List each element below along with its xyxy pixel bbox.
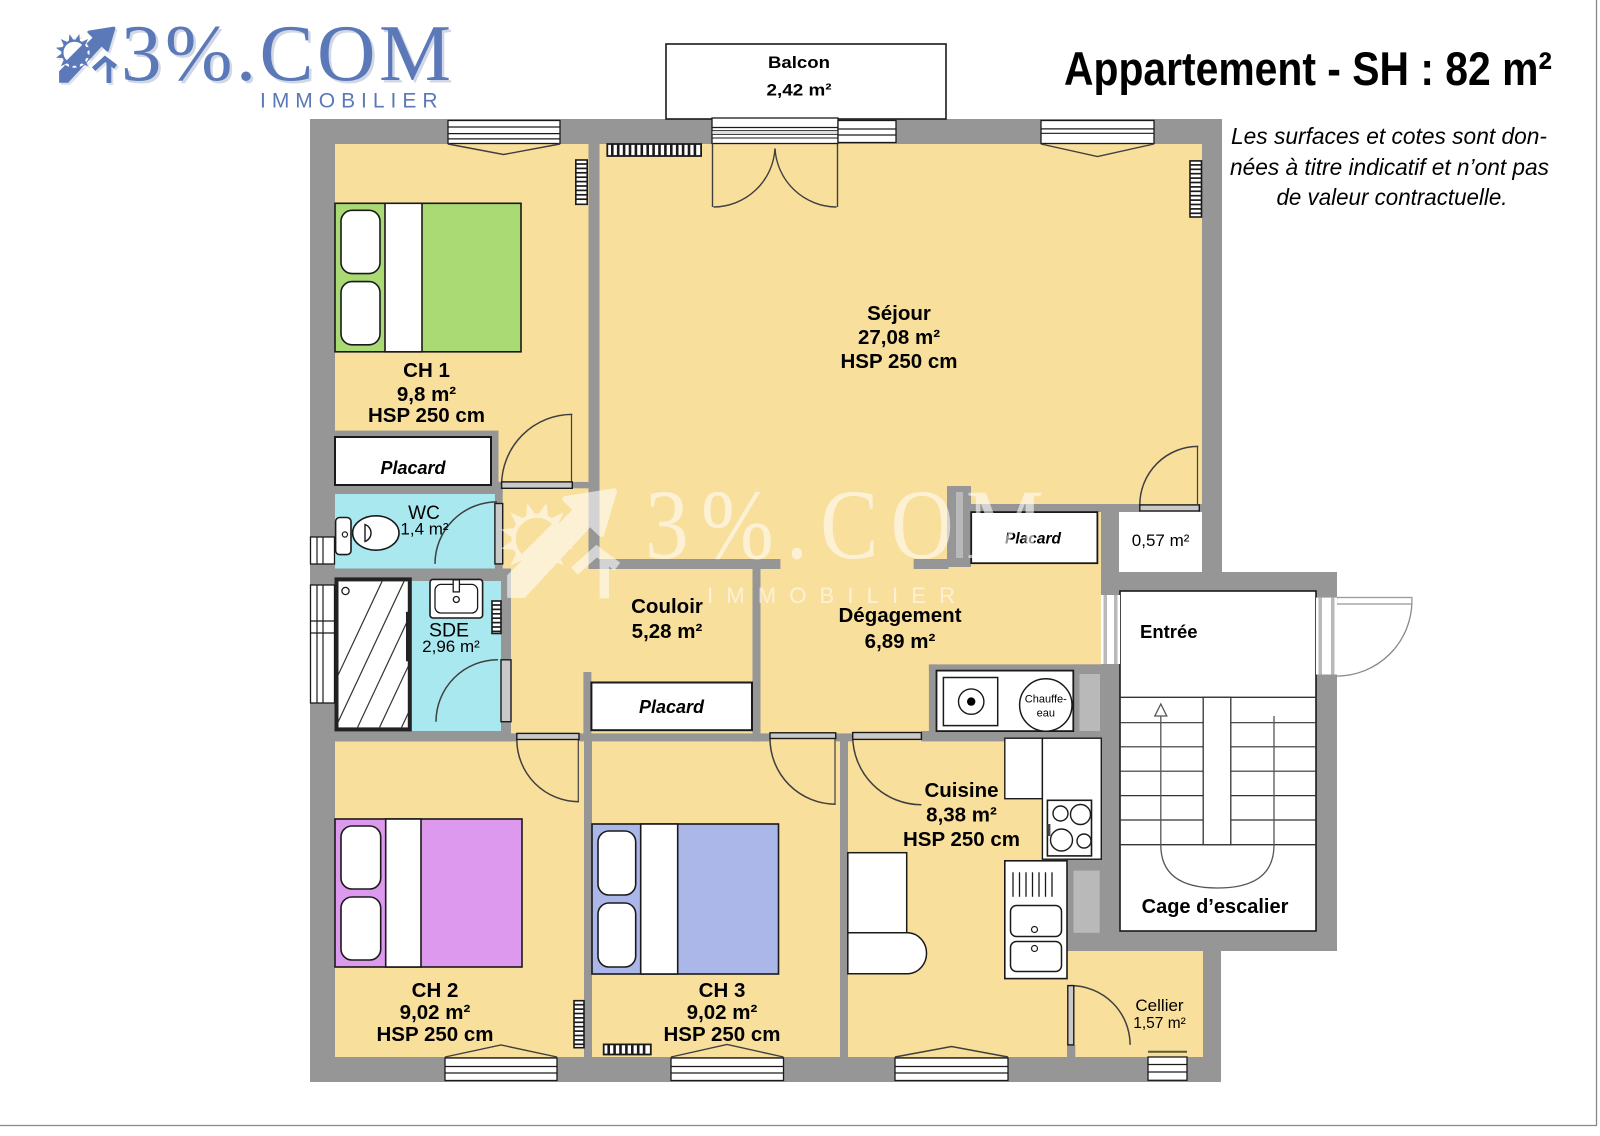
svg-text:Cuisine: Cuisine: [924, 779, 998, 802]
svg-text:Couloir: Couloir: [631, 595, 703, 618]
svg-text:1,4 m²: 1,4 m²: [400, 520, 449, 539]
svg-text:Chauffe-: Chauffe-: [1025, 694, 1067, 706]
svg-text:Les surfaces et cotes sont don: Les surfaces et cotes sont don-: [1231, 123, 1547, 149]
svg-text:27,08 m²: 27,08 m²: [858, 326, 940, 349]
svg-text:Appartement - SH : 82 m²: Appartement - SH : 82 m²: [1064, 42, 1552, 95]
svg-text:Balcon: Balcon: [768, 54, 830, 72]
svg-text:nées à titre indicatif et n’on: nées à titre indicatif et n’ont pas: [1230, 154, 1549, 180]
svg-text:HSP 250 cm: HSP 250 cm: [368, 404, 485, 427]
svg-text:IMMOBILIER: IMMOBILIER: [707, 583, 969, 608]
svg-text:2,96 m²: 2,96 m²: [422, 637, 480, 656]
svg-text:HSP 250 cm: HSP 250 cm: [840, 350, 957, 373]
svg-text:1,57 m²: 1,57 m²: [1133, 1015, 1186, 1032]
svg-text:8,38 m²: 8,38 m²: [926, 804, 997, 827]
svg-text:0,57 m²: 0,57 m²: [1132, 531, 1190, 550]
svg-text:eau: eau: [1037, 708, 1055, 720]
svg-text:Placard: Placard: [380, 458, 446, 478]
svg-text:3%.COM: 3%.COM: [645, 469, 1056, 580]
svg-text:HSP 250 cm: HSP 250 cm: [663, 1023, 780, 1046]
svg-text:Placard: Placard: [639, 697, 705, 717]
svg-text:IMMOBILIER: IMMOBILIER: [260, 90, 444, 113]
svg-text:3%.COM: 3%.COM: [121, 8, 451, 98]
svg-text:9,8 m²: 9,8 m²: [397, 383, 456, 406]
svg-text:Cage d’escalier: Cage d’escalier: [1142, 896, 1289, 918]
svg-text:Séjour: Séjour: [867, 302, 931, 325]
svg-text:6,89 m²: 6,89 m²: [865, 630, 936, 653]
svg-text:CH 2: CH 2: [412, 979, 459, 1002]
svg-text:Cellier: Cellier: [1135, 996, 1184, 1015]
svg-text:9,02 m²: 9,02 m²: [687, 1001, 758, 1024]
svg-text:de valeur contractuelle.: de valeur contractuelle.: [1277, 184, 1508, 210]
svg-text:5,28 m²: 5,28 m²: [632, 620, 703, 643]
svg-text:2,42 m²: 2,42 m²: [767, 82, 833, 100]
svg-text:9,02 m²: 9,02 m²: [400, 1001, 471, 1024]
svg-text:CH 1: CH 1: [403, 359, 450, 382]
svg-text:HSP 250 cm: HSP 250 cm: [903, 828, 1020, 851]
svg-text:CH 3: CH 3: [699, 979, 746, 1002]
svg-text:Entrée: Entrée: [1140, 621, 1198, 642]
svg-text:HSP 250 cm: HSP 250 cm: [376, 1023, 493, 1046]
